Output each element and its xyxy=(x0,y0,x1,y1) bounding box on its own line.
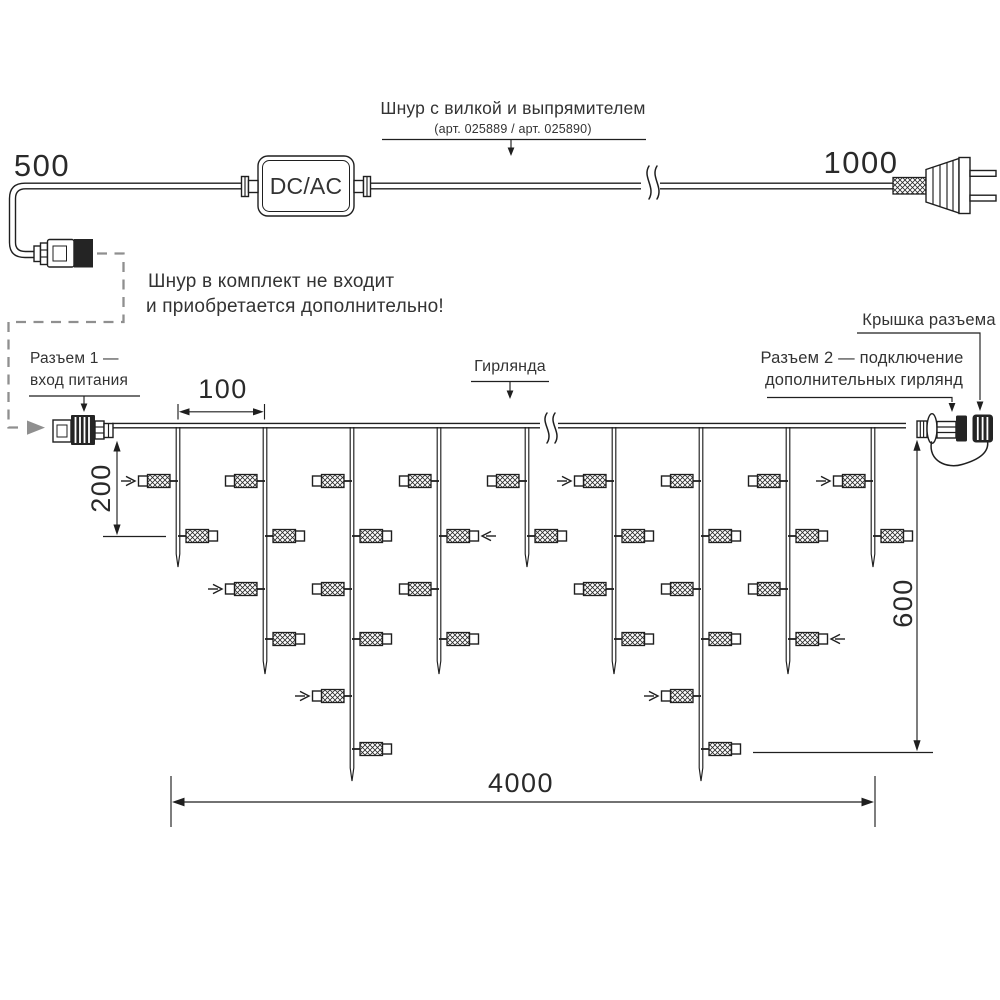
garland-dimension-diagram: 500 1000 DC/AC Шнур с вилкой и выпрямите… xyxy=(0,0,1000,1000)
dim-100-label: 100 xyxy=(198,374,248,404)
connector1-label-line1: Разъем 1 — xyxy=(30,350,119,367)
lamp xyxy=(313,583,353,596)
connector2-label-line1: Разъем 2 — подключение xyxy=(760,349,963,367)
lamp-body xyxy=(273,530,296,543)
lamp-body xyxy=(322,690,345,703)
power-cord-connector xyxy=(34,239,93,268)
lamp-cap xyxy=(749,476,758,486)
lamp-body xyxy=(843,475,866,488)
garland-wire xyxy=(112,423,906,427)
lamp xyxy=(439,530,496,543)
lamp xyxy=(662,475,702,488)
lamp-cap xyxy=(226,584,235,594)
lamp-body xyxy=(758,475,781,488)
garland-break-symbol xyxy=(540,413,558,443)
lamp-cap xyxy=(819,531,828,541)
lamp-body xyxy=(881,530,904,543)
lamp-cap xyxy=(662,476,671,486)
connector2-label-pointer xyxy=(767,398,955,413)
note-dashed-path xyxy=(9,254,124,435)
lamp-body xyxy=(671,583,694,596)
garland-drop xyxy=(749,427,846,674)
lamp xyxy=(614,633,654,646)
lamp-body xyxy=(447,530,470,543)
lamp-cap xyxy=(296,634,305,644)
lamp xyxy=(816,475,873,488)
lamp xyxy=(614,530,654,543)
lamp-cap xyxy=(645,531,654,541)
lamp-cap xyxy=(732,634,741,644)
lamp xyxy=(295,690,352,703)
plug-prong-bottom xyxy=(970,195,996,201)
lamp-body xyxy=(360,530,383,543)
lamp-cap xyxy=(662,584,671,594)
lamp-cap xyxy=(226,476,235,486)
lamp-body xyxy=(709,530,732,543)
lamp xyxy=(265,530,305,543)
lamp-body xyxy=(273,633,296,646)
lamp-body xyxy=(497,475,520,488)
dim-4000-label: 4000 xyxy=(488,768,554,798)
lamp-cap xyxy=(904,531,913,541)
lamp-body xyxy=(671,475,694,488)
lamp-body xyxy=(360,633,383,646)
lamp xyxy=(400,475,440,488)
lamp-body xyxy=(235,583,258,596)
garland-drop xyxy=(208,427,305,674)
lamp xyxy=(662,583,702,596)
dc-ac-label: DC/AC xyxy=(270,173,343,199)
drop-wire xyxy=(871,427,875,567)
dim-600-label: 600 xyxy=(888,578,918,628)
lamp-cap xyxy=(575,476,584,486)
lamp-cap xyxy=(400,476,409,486)
lamp-cap xyxy=(400,584,409,594)
drop-wire xyxy=(786,427,790,674)
cord-label-line1: Шнур с вилкой и выпрямителем xyxy=(380,98,645,118)
connector2-label-line2: дополнительных гирлянд xyxy=(765,371,963,389)
lamp-cap xyxy=(575,584,584,594)
dim-500-label: 500 xyxy=(14,148,70,183)
lamp-cap xyxy=(488,476,497,486)
lamp-cap xyxy=(470,634,479,644)
lamp xyxy=(557,475,614,488)
lamp-body xyxy=(584,583,607,596)
lamp xyxy=(352,743,392,756)
lamp-cap xyxy=(819,634,828,644)
lamp-body xyxy=(360,743,383,756)
garland-drop xyxy=(816,427,913,567)
lamp-cap xyxy=(296,531,305,541)
connector1-label-pointer xyxy=(29,396,140,412)
lamp xyxy=(701,743,741,756)
cord-label-line2: (арт. 025889 / арт. 025890) xyxy=(434,122,591,136)
lamp-cap xyxy=(209,531,218,541)
drop-wire xyxy=(525,427,529,567)
cap-strap xyxy=(931,441,988,466)
cap-label: Крышка разъема xyxy=(862,311,996,329)
lamp-body xyxy=(584,475,607,488)
lamp-cap xyxy=(383,634,392,644)
lamp-body xyxy=(148,475,171,488)
connector-cap xyxy=(973,415,994,443)
lamp-cap xyxy=(645,634,654,644)
lamp-cap xyxy=(313,476,322,486)
lamp xyxy=(788,633,845,646)
garland-label: Гирлянда xyxy=(474,358,546,375)
lamp-cap xyxy=(732,744,741,754)
lamp-cap xyxy=(470,531,479,541)
garland-drop xyxy=(488,427,567,567)
lamp xyxy=(749,583,789,596)
note-line2: и приобретается дополнительно! xyxy=(146,296,444,317)
lamp xyxy=(178,530,218,543)
lamp xyxy=(226,475,266,488)
lamp xyxy=(313,475,353,488)
lamp xyxy=(527,530,567,543)
drop-wire xyxy=(612,427,616,674)
lamp xyxy=(352,633,392,646)
lamp-body xyxy=(671,690,694,703)
lamp-body xyxy=(447,633,470,646)
lamp-body xyxy=(235,475,258,488)
lamp xyxy=(352,530,392,543)
garland-drop xyxy=(400,427,497,674)
garland-drop xyxy=(557,427,654,674)
lamp-cap xyxy=(313,691,322,701)
lamp xyxy=(575,583,615,596)
dimension-100 xyxy=(178,404,265,420)
drop-wire xyxy=(437,427,441,674)
note-line1: Шнур в комплект не входит xyxy=(148,271,394,292)
garland-label-pointer xyxy=(471,382,549,400)
lamp-body xyxy=(796,530,819,543)
lamp xyxy=(644,690,701,703)
garland-drop xyxy=(295,427,392,781)
lamp xyxy=(749,475,789,488)
lamp-cap xyxy=(749,584,758,594)
lamp xyxy=(701,530,741,543)
lamp-cap xyxy=(834,476,843,486)
connector1-label-line2: вход питания xyxy=(30,372,128,389)
lamp-cap xyxy=(662,691,671,701)
lamp-body xyxy=(622,633,645,646)
lamp xyxy=(488,475,528,488)
lamp-body xyxy=(758,583,781,596)
lamp xyxy=(208,583,265,596)
lamp xyxy=(265,633,305,646)
lamp-body xyxy=(186,530,209,543)
lamp-body xyxy=(622,530,645,543)
lamp-body xyxy=(322,475,345,488)
lamp xyxy=(439,633,479,646)
garland-drops xyxy=(121,427,913,781)
lamp xyxy=(788,530,828,543)
lamp-cap xyxy=(139,476,148,486)
diagram-svg: 500 1000 DC/AC Шнур с вилкой и выпрямите… xyxy=(0,0,1000,1000)
garland-drop xyxy=(121,427,218,567)
lamp-body xyxy=(709,633,732,646)
power-plug xyxy=(893,158,996,214)
power-cord-right-segment xyxy=(371,183,894,189)
cord-break-symbol xyxy=(641,166,660,199)
lamp xyxy=(873,530,913,543)
lamp-body xyxy=(535,530,558,543)
lamp-body xyxy=(322,583,345,596)
dim-200-label: 200 xyxy=(86,463,116,513)
garland-drop xyxy=(644,427,741,781)
lamp-body xyxy=(709,743,732,756)
drop-wire xyxy=(176,427,180,567)
lamp-body xyxy=(409,583,432,596)
lamp-body xyxy=(409,475,432,488)
lamp-cap xyxy=(383,744,392,754)
drop-wire xyxy=(263,427,267,674)
lamp-cap xyxy=(383,531,392,541)
plug-prong-top xyxy=(970,171,996,177)
lamp xyxy=(701,633,741,646)
dim-1000-label: 1000 xyxy=(824,145,899,180)
lamp xyxy=(400,583,440,596)
lamp-cap xyxy=(558,531,567,541)
lamp-cap xyxy=(313,584,322,594)
garland-connector-1 xyxy=(53,415,113,445)
dashed-arrowhead xyxy=(27,421,45,435)
lamp xyxy=(121,475,178,488)
lamp-cap xyxy=(732,531,741,541)
cord-label-pointer xyxy=(382,140,646,157)
lamp-body xyxy=(796,633,819,646)
garland-connector-2 xyxy=(917,414,993,466)
